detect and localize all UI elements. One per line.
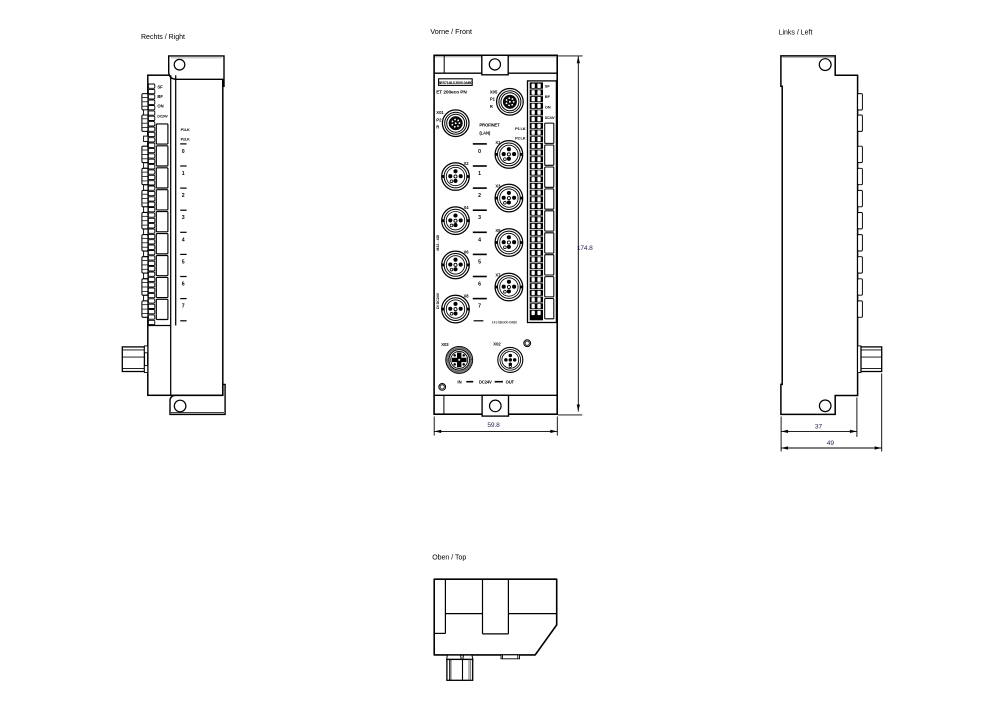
svg-text:X3: X3 — [495, 184, 501, 189]
svg-text:DC24V: DC24V — [479, 379, 492, 384]
svg-text:ET 200eco PN: ET 200eco PN — [436, 89, 467, 95]
svg-text:X02: X02 — [493, 341, 501, 346]
svg-text:DC24V: DC24V — [157, 114, 168, 118]
svg-text:ON: ON — [545, 106, 551, 110]
svg-text:X03: X03 — [441, 342, 449, 347]
svg-text:7: 7 — [182, 304, 185, 310]
svg-text:X6: X6 — [464, 249, 470, 254]
svg-text:X4: X4 — [464, 205, 470, 210]
svg-text:R: R — [490, 104, 493, 109]
svg-text:ON: ON — [157, 104, 163, 109]
svg-text:6ES7148-6JD00-0AB0: 6ES7148-6JD00-0AB0 — [438, 81, 472, 85]
svg-text:6: 6 — [478, 282, 481, 288]
svg-text:OUT: OUT — [506, 379, 515, 384]
svg-text:3: 3 — [478, 215, 481, 221]
svg-text:4: 4 — [478, 237, 481, 243]
svg-text:P2LK: P2LK — [181, 138, 190, 142]
svg-text:SF: SF — [545, 85, 551, 89]
svg-text:3: 3 — [182, 215, 185, 221]
svg-text:X2: X2 — [464, 161, 470, 166]
svg-text:6: 6 — [182, 282, 185, 288]
svg-text:0: 0 — [478, 149, 481, 155]
svg-text:4: 4 — [182, 237, 185, 243]
svg-text:Oben / Top: Oben / Top — [432, 554, 466, 561]
svg-text:P1: P1 — [490, 97, 496, 102]
svg-text:5: 5 — [182, 259, 185, 265]
svg-text:141-6BG00-0AB0: 141-6BG00-0AB0 — [492, 320, 518, 324]
svg-text:DC24V: DC24V — [545, 116, 556, 120]
svg-text:SF: SF — [157, 84, 163, 89]
svg-text:P2 LK: P2 LK — [515, 135, 526, 140]
svg-text:(LAN): (LAN) — [479, 130, 490, 135]
svg-text:X7: X7 — [495, 273, 501, 278]
svg-text:Links / Left: Links / Left — [779, 30, 813, 37]
svg-text:X05: X05 — [490, 90, 498, 95]
svg-text:P1LK: P1LK — [181, 128, 190, 132]
svg-text:Vorne / Front: Vorne / Front — [430, 27, 472, 36]
svg-text:X01: X01 — [436, 110, 444, 115]
svg-text:X8: X8 — [464, 294, 470, 299]
svg-text:7: 7 — [478, 304, 481, 310]
svg-text:5: 5 — [478, 259, 481, 265]
svg-text:P1 LK: P1 LK — [515, 126, 526, 131]
svg-text:2: 2 — [478, 193, 481, 199]
svg-text:37: 37 — [815, 424, 823, 431]
svg-text:DI DC24V: DI DC24V — [436, 292, 440, 309]
svg-text:M12 - 4DI: M12 - 4DI — [436, 235, 440, 251]
svg-text:1: 1 — [478, 171, 481, 177]
svg-text:BF: BF — [157, 94, 163, 99]
svg-text:IN: IN — [457, 379, 461, 384]
svg-text:174.8: 174.8 — [577, 245, 593, 252]
svg-text:X5: X5 — [495, 228, 501, 233]
svg-text:1: 1 — [182, 171, 185, 177]
svg-text:PROFINET: PROFINET — [479, 123, 500, 128]
svg-text:49: 49 — [827, 440, 835, 447]
svg-text:0: 0 — [182, 149, 185, 155]
svg-text:X1: X1 — [495, 140, 501, 145]
svg-text:R: R — [436, 125, 439, 130]
svg-text:Rechts / Right: Rechts / Right — [141, 34, 185, 41]
svg-text:BF: BF — [545, 95, 551, 99]
svg-text:2: 2 — [182, 193, 185, 199]
svg-text:P2: P2 — [436, 117, 442, 122]
svg-text:59.8: 59.8 — [487, 422, 500, 429]
